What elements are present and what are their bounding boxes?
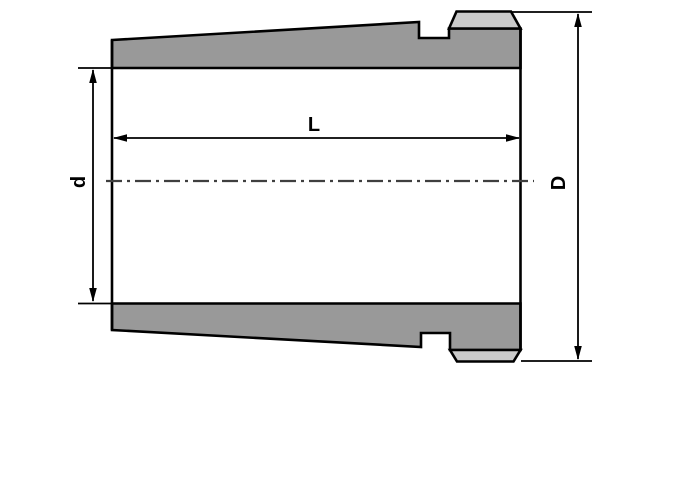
thread-chamfer-bottom [450,350,521,362]
thread-chamfer-top [449,12,521,29]
dim-label-L: L [308,114,320,136]
drawing-background [0,0,674,501]
dim-label-d: d [68,176,90,188]
dim-label-D: D [548,176,570,190]
drawing-canvas: L d D [0,0,674,501]
technical-drawing-adapter-sleeve: L d D [0,0,674,501]
